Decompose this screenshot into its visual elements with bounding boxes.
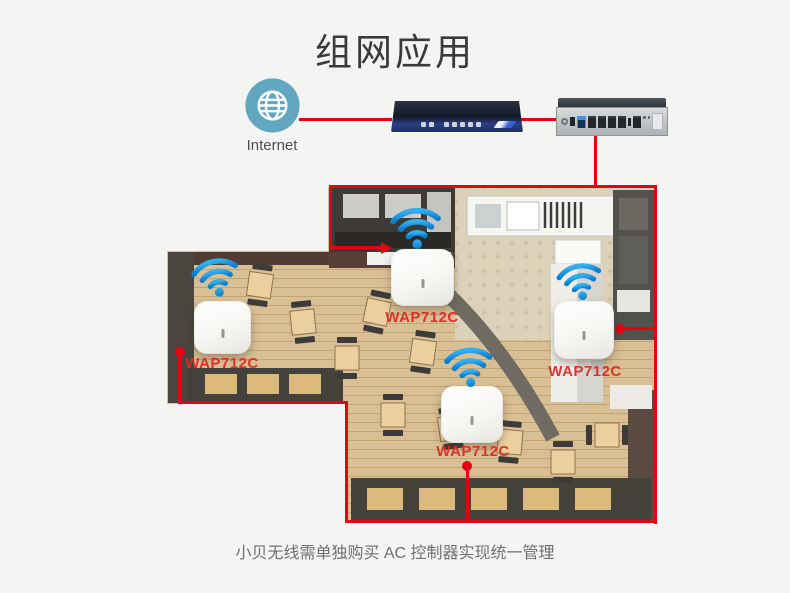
ac-accent: [494, 121, 517, 128]
lan-port: [588, 116, 596, 128]
link-to-ap2: [331, 246, 382, 249]
router-front-panel: [556, 107, 668, 136]
ap-label: WAP712C: [347, 309, 497, 326]
wifi-signal-icon: [385, 202, 446, 252]
access-point-2: [391, 249, 454, 306]
lan-port: [598, 116, 606, 128]
link-bottom-edge: [345, 520, 657, 523]
power-button-icon: [561, 118, 568, 125]
gateway-router-device: [556, 98, 668, 136]
router-top-face: [558, 98, 666, 107]
link-right-edge: [654, 185, 657, 524]
access-point-1: [194, 301, 251, 354]
usb-port: [628, 118, 631, 126]
bottom-bench: [351, 478, 651, 520]
lan-port: [608, 116, 616, 128]
wifi-signal-icon: [439, 341, 499, 391]
access-point-3: [554, 301, 614, 359]
link-router-floorplan: [594, 134, 597, 188]
link-left-shelf: [178, 401, 348, 404]
internet-label: Internet: [232, 137, 312, 154]
status-led: [648, 116, 651, 119]
ap-label: WAP712C: [510, 363, 660, 380]
page-title: 组网应用: [0, 22, 790, 76]
lan-port: [618, 116, 626, 128]
status-led: [643, 116, 646, 119]
ac-ports: [421, 122, 481, 127]
ap-label: WAP712C: [147, 355, 297, 372]
link-to-ap3: [621, 327, 655, 330]
link-left-drop: [329, 185, 332, 250]
tap-dot-ap3: [615, 324, 625, 334]
power-port: [570, 117, 575, 126]
link-top-edge: [329, 185, 657, 188]
page: 组网应用 Internet: [0, 0, 790, 593]
console-port: [633, 116, 641, 128]
link-ac-router: [521, 118, 557, 121]
link-internet-ac: [299, 118, 392, 121]
ac-controller-device: [391, 101, 523, 132]
router-logo-plate: [652, 113, 663, 130]
access-point-4: [441, 386, 503, 443]
ap-label: WAP712C: [398, 443, 548, 460]
tap-dot-ap4: [462, 461, 472, 471]
link-ap4-down: [466, 466, 469, 523]
globe-icon: [244, 77, 301, 134]
wan-port: [577, 116, 587, 128]
footer-caption: 小贝无线需单独购买 AC 控制器实现统一管理: [0, 539, 790, 563]
link-left-bottom-drop: [345, 401, 348, 523]
